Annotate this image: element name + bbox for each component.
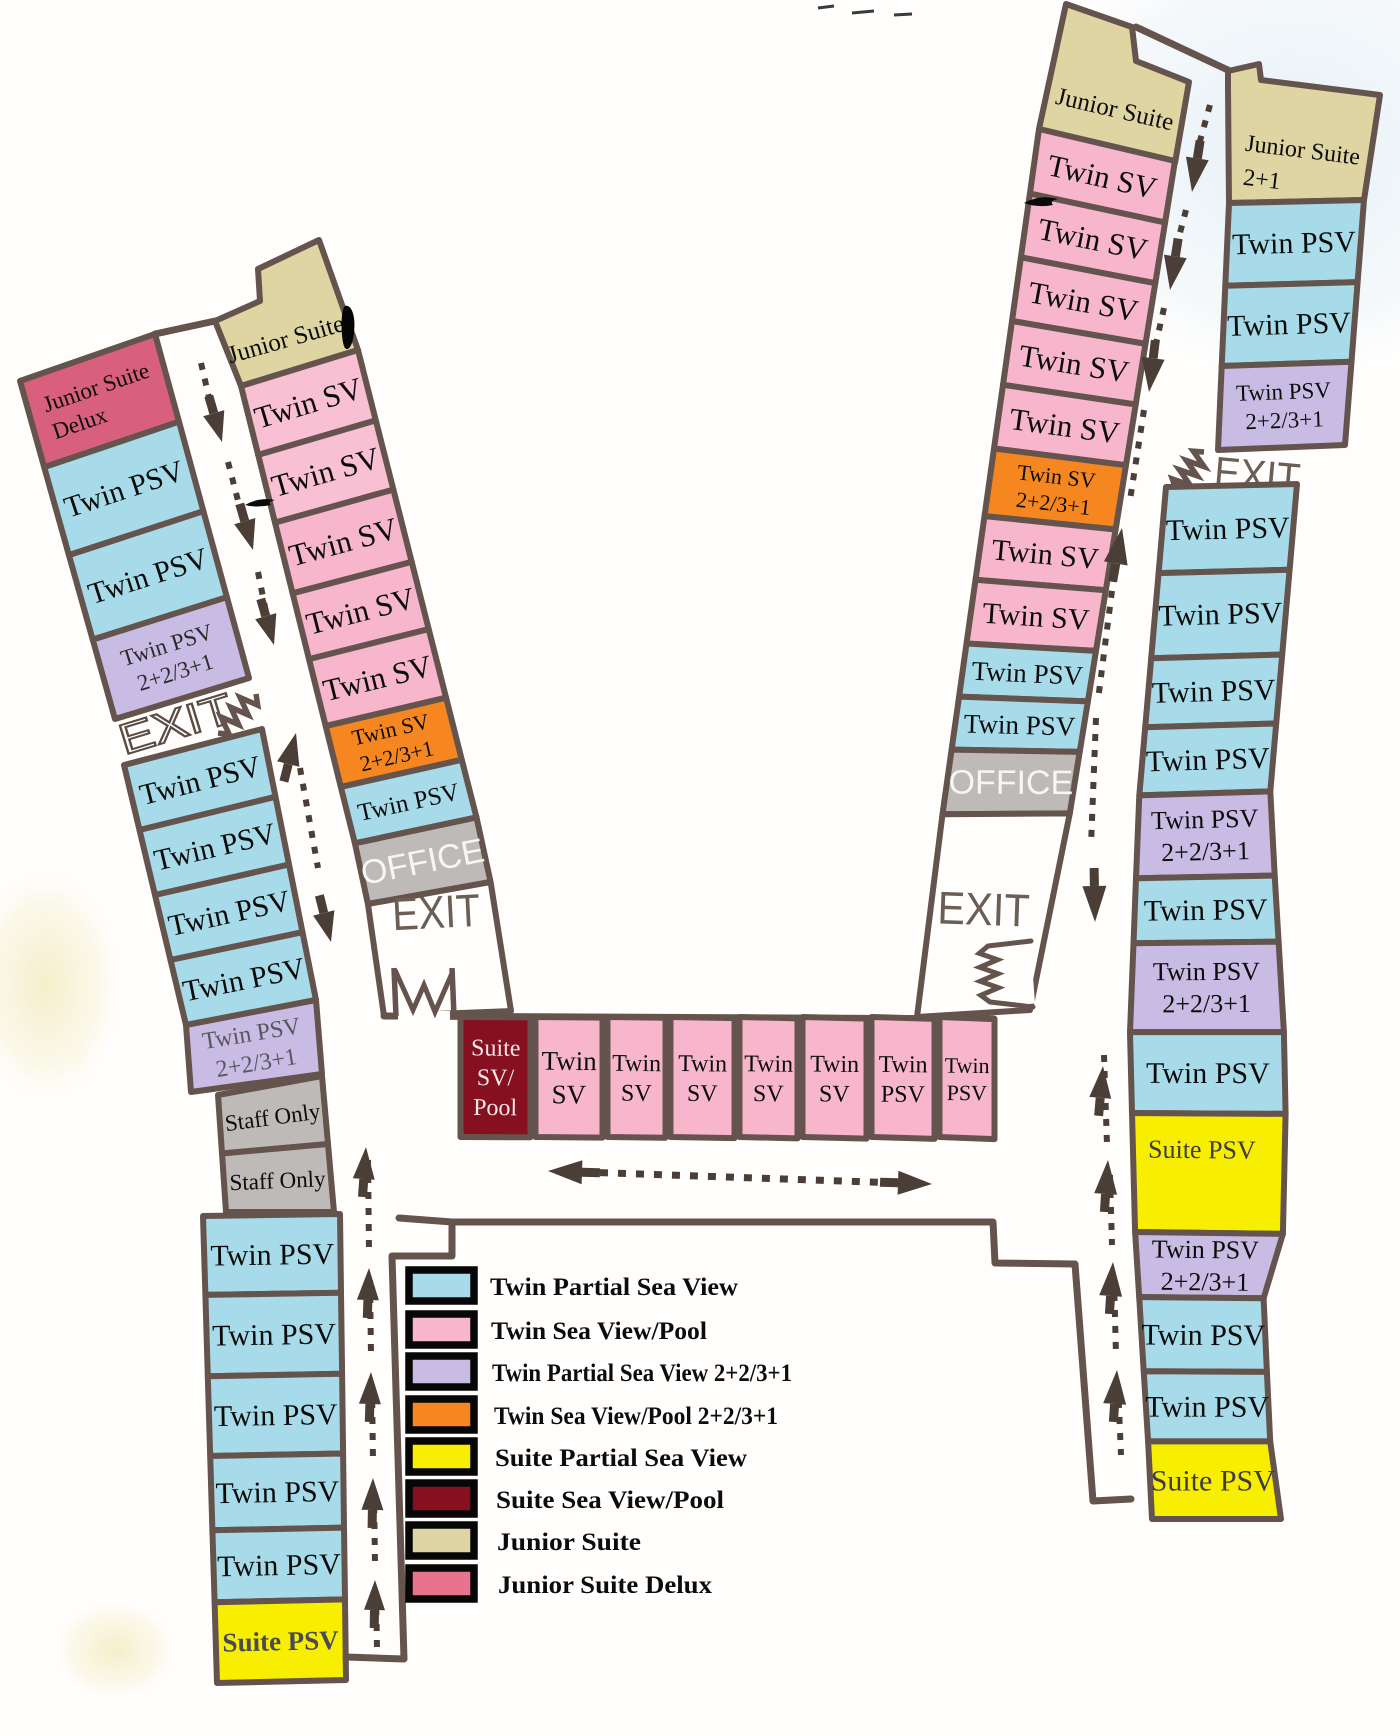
svg-text:SV: SV <box>551 1079 586 1109</box>
svg-text:Twin PSV: Twin PSV <box>1141 1318 1265 1352</box>
svg-text:EXIT: EXIT <box>391 884 482 941</box>
svg-text:Twin: Twin <box>879 1052 928 1079</box>
svg-text:Twin: Twin <box>678 1051 727 1078</box>
svg-text:SV: SV <box>753 1081 785 1107</box>
svg-text:Suite: Suite <box>471 1035 521 1062</box>
svg-text:Twin: Twin <box>744 1051 793 1078</box>
svg-text:Twin PSV: Twin PSV <box>1145 742 1270 779</box>
svg-text:Twin PSV: Twin PSV <box>964 708 1077 741</box>
svg-text:Twin PSV: Twin PSV <box>214 1398 339 1433</box>
svg-text:2+2/3+1: 2+2/3+1 <box>1162 989 1251 1018</box>
svg-text:Twin PSV: Twin PSV <box>1151 804 1259 836</box>
svg-text:SV/: SV/ <box>477 1065 515 1091</box>
svg-text:Twin PSV: Twin PSV <box>971 656 1084 691</box>
svg-text:Twin PSV: Twin PSV <box>1145 1391 1269 1424</box>
svg-text:Twin PSV: Twin PSV <box>215 1475 340 1510</box>
svg-text:Twin Partial Sea View: Twin Partial Sea View <box>490 1274 738 1301</box>
svg-text:2+2/3+1: 2+2/3+1 <box>1161 1267 1250 1297</box>
svg-text:Twin Sea View/Pool: Twin Sea View/Pool <box>491 1318 707 1345</box>
svg-text:Twin PSV: Twin PSV <box>1166 511 1291 547</box>
svg-text:SV: SV <box>819 1081 851 1107</box>
svg-text:Twin PSV: Twin PSV <box>1153 957 1261 987</box>
svg-text:2+2/3+1: 2+2/3+1 <box>1245 406 1324 434</box>
svg-text:Twin: Twin <box>810 1052 859 1079</box>
svg-text:Twin PSV: Twin PSV <box>1151 673 1276 709</box>
svg-text:Suite PSV: Suite PSV <box>1148 1135 1256 1165</box>
svg-text:EXIT: EXIT <box>937 881 1031 936</box>
svg-text:2+2/3+1: 2+2/3+1 <box>1161 836 1250 867</box>
svg-text:Pool: Pool <box>473 1095 518 1121</box>
svg-text:Twin PSV: Twin PSV <box>1227 306 1352 343</box>
svg-text:Twin: Twin <box>945 1053 990 1078</box>
svg-text:Suite PSV: Suite PSV <box>222 1625 339 1658</box>
svg-text:Junior Suite Delux: Junior Suite Delux <box>498 1572 713 1599</box>
svg-text:Junior Suite: Junior Suite <box>497 1529 641 1556</box>
svg-text:Twin: Twin <box>541 1046 597 1077</box>
svg-text:SV: SV <box>621 1081 653 1107</box>
svg-text:Suite Sea View/Pool: Suite Sea View/Pool <box>496 1487 724 1514</box>
svg-text:Twin: Twin <box>612 1051 661 1078</box>
svg-text:Twin PSV: Twin PSV <box>210 1238 335 1273</box>
svg-text:Twin PSV: Twin PSV <box>212 1318 337 1353</box>
svg-text:Suite PSV: Suite PSV <box>1151 1464 1276 1497</box>
svg-text:Twin PSV: Twin PSV <box>217 1548 342 1584</box>
svg-text:PSV: PSV <box>947 1080 988 1105</box>
svg-text:Twin PSV: Twin PSV <box>1236 377 1332 405</box>
svg-text:Suite Partial Sea View: Suite Partial Sea View <box>495 1445 747 1472</box>
svg-text:Twin PSV: Twin PSV <box>1146 1057 1270 1090</box>
svg-text:Twin Partial Sea View 2+2/3+1: Twin Partial Sea View 2+2/3+1 <box>492 1360 792 1387</box>
svg-text:Twin PSV: Twin PSV <box>1158 596 1283 632</box>
svg-text:Twin PSV: Twin PSV <box>1144 893 1269 928</box>
svg-text:Twin PSV: Twin PSV <box>1232 225 1357 261</box>
svg-text:SV: SV <box>687 1081 719 1107</box>
svg-text:Staff Only: Staff Only <box>229 1166 327 1195</box>
svg-text:Twin Sea View/Pool 2+2/3+1: Twin Sea View/Pool 2+2/3+1 <box>494 1403 778 1430</box>
svg-text:OFFICE: OFFICE <box>948 763 1073 802</box>
svg-text:Twin PSV: Twin PSV <box>1152 1234 1260 1264</box>
svg-text:PSV: PSV <box>881 1082 926 1108</box>
